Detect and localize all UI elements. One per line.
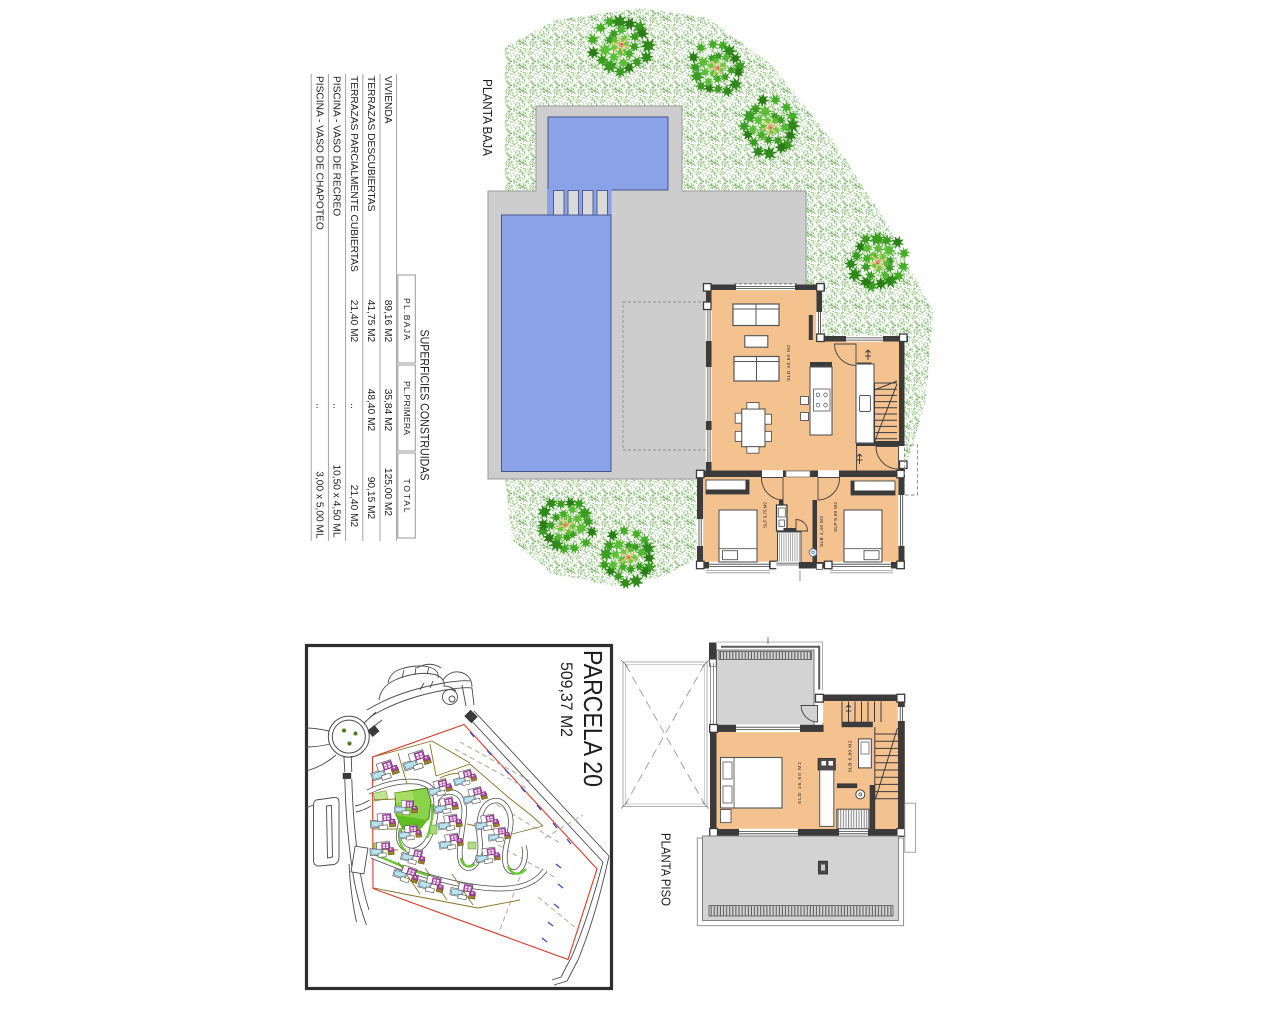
svg-text:TERRAZAS DESCUBIERTAS: TERRAZAS DESCUBIERTAS (365, 76, 376, 212)
svg-text:PARCELA 20: PARCELA 20 (578, 650, 608, 787)
svg-text:SUPERFICIES CONSTRUIDAS: SUPERFICIES CONSTRUIDAS (418, 330, 432, 481)
svg-text:..: .. (313, 403, 324, 409)
svg-text:..: .. (331, 403, 342, 409)
svg-text:SLB 4,40 M2: SLB 4,40 M2 (819, 516, 825, 547)
svg-text:VIVIENDA: VIVIENDA (382, 76, 393, 124)
svg-text:SLP 9,90 M2: SLP 9,90 M2 (833, 502, 839, 532)
svg-text:3,00 x 5,00 ML: 3,00 x 5,00 ML (313, 471, 324, 539)
svg-text:PISCINA - VASO DE CHAPOTEO: PISCINA - VASO DE CHAPOTEO (313, 76, 324, 230)
svg-text:10,50 x 4,50 ML: 10,50 x 4,50 ML (331, 464, 342, 537)
svg-text:PL.PRIMERA: PL.PRIMERA (402, 381, 412, 435)
svg-text:41,75 M2: 41,75 M2 (365, 300, 376, 343)
svg-text:PL.BAJA: PL.BAJA (402, 298, 412, 340)
svg-text:509,37 M2: 509,37 M2 (557, 662, 575, 737)
svg-text:SLB 6,80 M2: SLB 6,80 M2 (848, 740, 854, 772)
svg-text:48,40 M2: 48,40 M2 (365, 389, 376, 432)
svg-text:21,40 M2: 21,40 M2 (348, 485, 359, 528)
svg-text:SLP 9,75 M2: SLP 9,75 M2 (762, 502, 768, 528)
svg-text:TERRAZAS PARCIALMENTE CUBIERTA: TERRAZAS PARCIALMENTE CUBIERTAS (348, 76, 359, 272)
svg-text:PLANTA BAJA: PLANTA BAJA (480, 79, 494, 157)
svg-text:..: .. (348, 403, 359, 409)
svg-text:21,40 M2: 21,40 M2 (348, 300, 359, 343)
svg-text:35,84 M2: 35,84 M2 (382, 389, 393, 432)
svg-text:PLANTA PISO: PLANTA PISO (659, 833, 673, 906)
svg-text:SLD 40,60 M2: SLD 40,60 M2 (786, 345, 792, 381)
svg-text:125,00 M2: 125,00 M2 (382, 468, 393, 516)
svg-text:89,16 M2: 89,16 M2 (382, 300, 393, 343)
svg-text:PISCINA - VASO DE RECREO: PISCINA - VASO DE RECREO (331, 76, 342, 216)
svg-text:90,15 M2: 90,15 M2 (365, 477, 376, 520)
